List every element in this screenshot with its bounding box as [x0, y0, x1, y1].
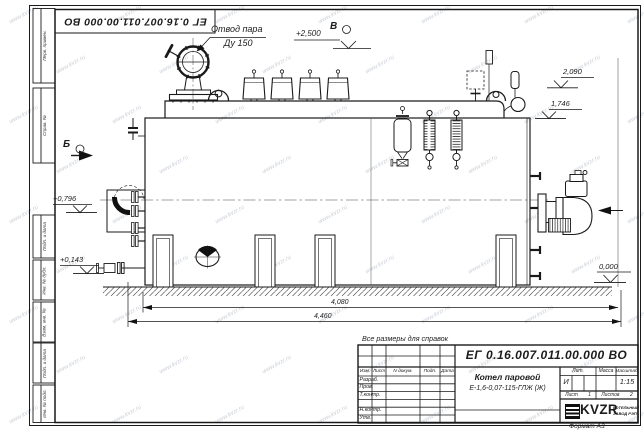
steam-drum	[165, 101, 504, 118]
steam-outlet-label-line1: Отвод пара	[211, 25, 262, 35]
view-arrow-right	[598, 207, 623, 215]
view-letter-left: Б	[63, 139, 70, 150]
elevation-right-upper: 2,090	[563, 68, 582, 76]
condensate-vessel	[391, 107, 411, 167]
sheets-value: 2	[630, 393, 633, 399]
safety-hoods	[243, 70, 349, 101]
header-list: Лист	[372, 369, 386, 374]
dimension-inner: 4,080	[331, 299, 349, 307]
header-dokum: N докум.	[386, 369, 420, 374]
elevation-right-lower: 1,746	[551, 100, 570, 108]
drain-valve	[97, 263, 146, 274]
elevation-ground: 0,000	[599, 263, 618, 271]
product-name: Котел паровой	[455, 373, 560, 382]
row-utv: Утв.	[360, 416, 372, 422]
feed-elbow-box	[107, 186, 145, 232]
ground-hatch	[103, 287, 612, 296]
title-designation: ЕГ 0.16.007.011.00.000 ВО	[456, 349, 637, 362]
top-designation-box: ЕГ 0.16.007.011.00.000 ВО	[55, 10, 215, 34]
elevation-left-upper: +0,796	[53, 195, 76, 203]
elevation-left-lower: +0,143	[60, 256, 83, 264]
kvzr-logo-icon	[565, 404, 580, 419]
company-line2: ЗАВОД РЭП	[613, 412, 637, 416]
scale-label: Масштаб	[615, 369, 638, 374]
manhole	[194, 246, 221, 269]
lit-value: И	[560, 378, 572, 386]
scale-value: 1:15	[616, 378, 638, 386]
lit-label: Лит.	[560, 369, 596, 375]
sheets-label: Листов	[601, 393, 619, 399]
sheet-value: 1	[588, 393, 591, 399]
burner	[538, 171, 592, 235]
top-left-fitting	[128, 118, 145, 140]
sidebar-field-vzam-inv: Взам. инв. №	[33, 302, 55, 342]
drawing-sheet: www.kvzr.ruwww.kvzr.ruwww.kvzr.ruwww.kvz…	[0, 0, 644, 430]
row-prov: Пров.	[360, 385, 374, 391]
row-nkontr: Н.контр.	[360, 408, 382, 414]
sheet-cell: Лист 1	[560, 392, 596, 400]
elevation-marks	[53, 40, 631, 282]
dashed-reference-item	[467, 71, 484, 101]
sidebar-field-inv-podl: Инв. № подл.	[33, 385, 55, 423]
dimension-annotations	[53, 26, 631, 328]
boiler-elevation-view	[97, 38, 613, 296]
company-line1: КОТЕЛЬНЫЙ	[613, 406, 639, 410]
sidebar-field-podp-data-1: Подп. и дата	[33, 215, 55, 258]
water-level-gauges	[424, 110, 462, 169]
steam-outlet-label-line2: Ду 150	[224, 39, 252, 49]
reference-note: Все размеры для справок	[362, 335, 448, 343]
sidebar-field-inv-dubl: Инв. № дубл.	[33, 260, 55, 300]
view-bubble-top	[343, 26, 351, 34]
pressure-gauge-siphon	[505, 72, 526, 112]
elevation-valve-top: +2,500	[296, 30, 321, 39]
format-note: Формат А3	[569, 423, 605, 430]
header-izm: Изм.	[358, 369, 372, 374]
header-podp: Подп.	[420, 369, 440, 374]
row-tkontr: Т.контр.	[360, 393, 381, 399]
header-data: Дата	[440, 369, 455, 374]
row-razrab: Разраб.	[360, 378, 379, 384]
sidebar-field-podp-data-2: Подп. и дата	[33, 343, 55, 383]
top-designation-text: ЕГ 0.16.007.011.00.000 ВО	[64, 15, 207, 27]
sidebar-field-sprav-no: Справ. №	[33, 88, 55, 163]
view-letter-top: В	[330, 21, 337, 32]
sheets-cell: Листов 2	[596, 392, 638, 400]
mass-label: Масса	[596, 369, 616, 375]
view-arrow-left	[71, 145, 93, 161]
dimension-overall: 4,460	[314, 313, 332, 321]
steam-outlet-valve	[166, 45, 218, 102]
product-type: Е-1,6-0,07-115-ГЛЖ (Ж)	[455, 385, 560, 393]
sheet-label: Лист	[565, 393, 578, 399]
sidebar-field-perv-primen: Перв. примен.	[33, 9, 55, 84]
drawing-linework	[0, 0, 644, 430]
